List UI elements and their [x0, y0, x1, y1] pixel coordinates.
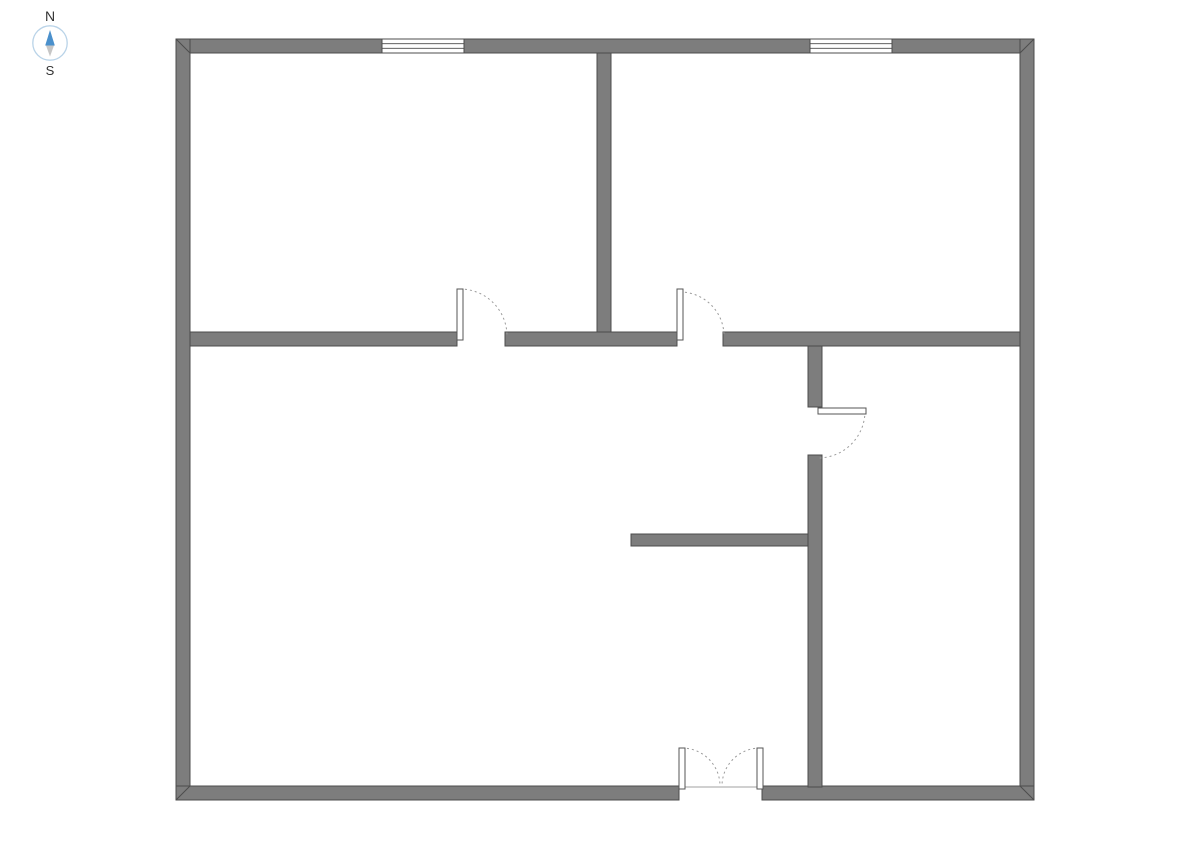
- double-door-entry-left-swing-arc: [682, 748, 720, 786]
- floorplan-svg: [0, 0, 1191, 842]
- wall-exterior-top: [176, 39, 1034, 53]
- floorplan-canvas: N S: [0, 0, 1191, 842]
- door-right-room-leaf: [818, 408, 866, 414]
- window-top-left: [382, 39, 464, 53]
- wall-interior-mid-center: [505, 332, 677, 346]
- wall-exterior-right: [1020, 39, 1034, 800]
- door-top-left-room-leaf: [457, 289, 463, 340]
- wall-interior-right-lower: [808, 455, 822, 787]
- double-door-entry-left-leaf: [679, 748, 685, 789]
- wall-interior-partial: [631, 534, 808, 546]
- wall-interior-right-upper: [808, 346, 822, 407]
- wall-interior-mid-left: [190, 332, 457, 346]
- door-right-room-swing-arc: [818, 411, 865, 458]
- wall-exterior-bottom-left: [176, 786, 679, 800]
- double-door-entry-right-leaf: [757, 748, 763, 789]
- window-top-right: [810, 39, 892, 53]
- wall-exterior-bottom-right: [762, 786, 1034, 800]
- door-top-right-room-swing-arc: [680, 292, 724, 336]
- wall-exterior-left: [176, 39, 190, 800]
- door-top-left-room-swing-arc: [460, 289, 507, 336]
- door-top-right-room-leaf: [677, 289, 683, 340]
- wall-interior-mid-right: [723, 332, 1020, 346]
- double-door-entry-right-swing-arc: [722, 748, 760, 786]
- wall-interior-top-rooms-divider: [597, 53, 611, 332]
